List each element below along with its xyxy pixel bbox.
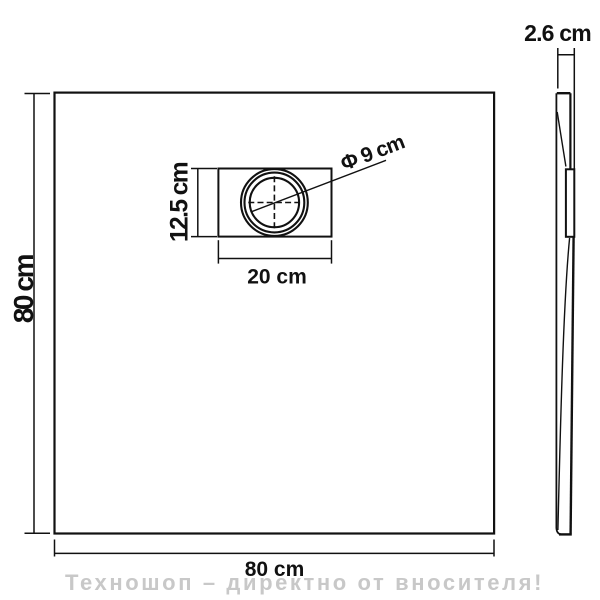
svg-text:Техношоп – директно от вносите: Техношоп – директно от вносителя!	[65, 570, 544, 595]
svg-text:2.6 cm: 2.6 cm	[524, 20, 591, 46]
svg-text:80 cm: 80 cm	[8, 254, 39, 323]
svg-text:12.5 cm: 12.5 cm	[167, 162, 194, 242]
svg-text:20 cm: 20 cm	[247, 266, 307, 289]
